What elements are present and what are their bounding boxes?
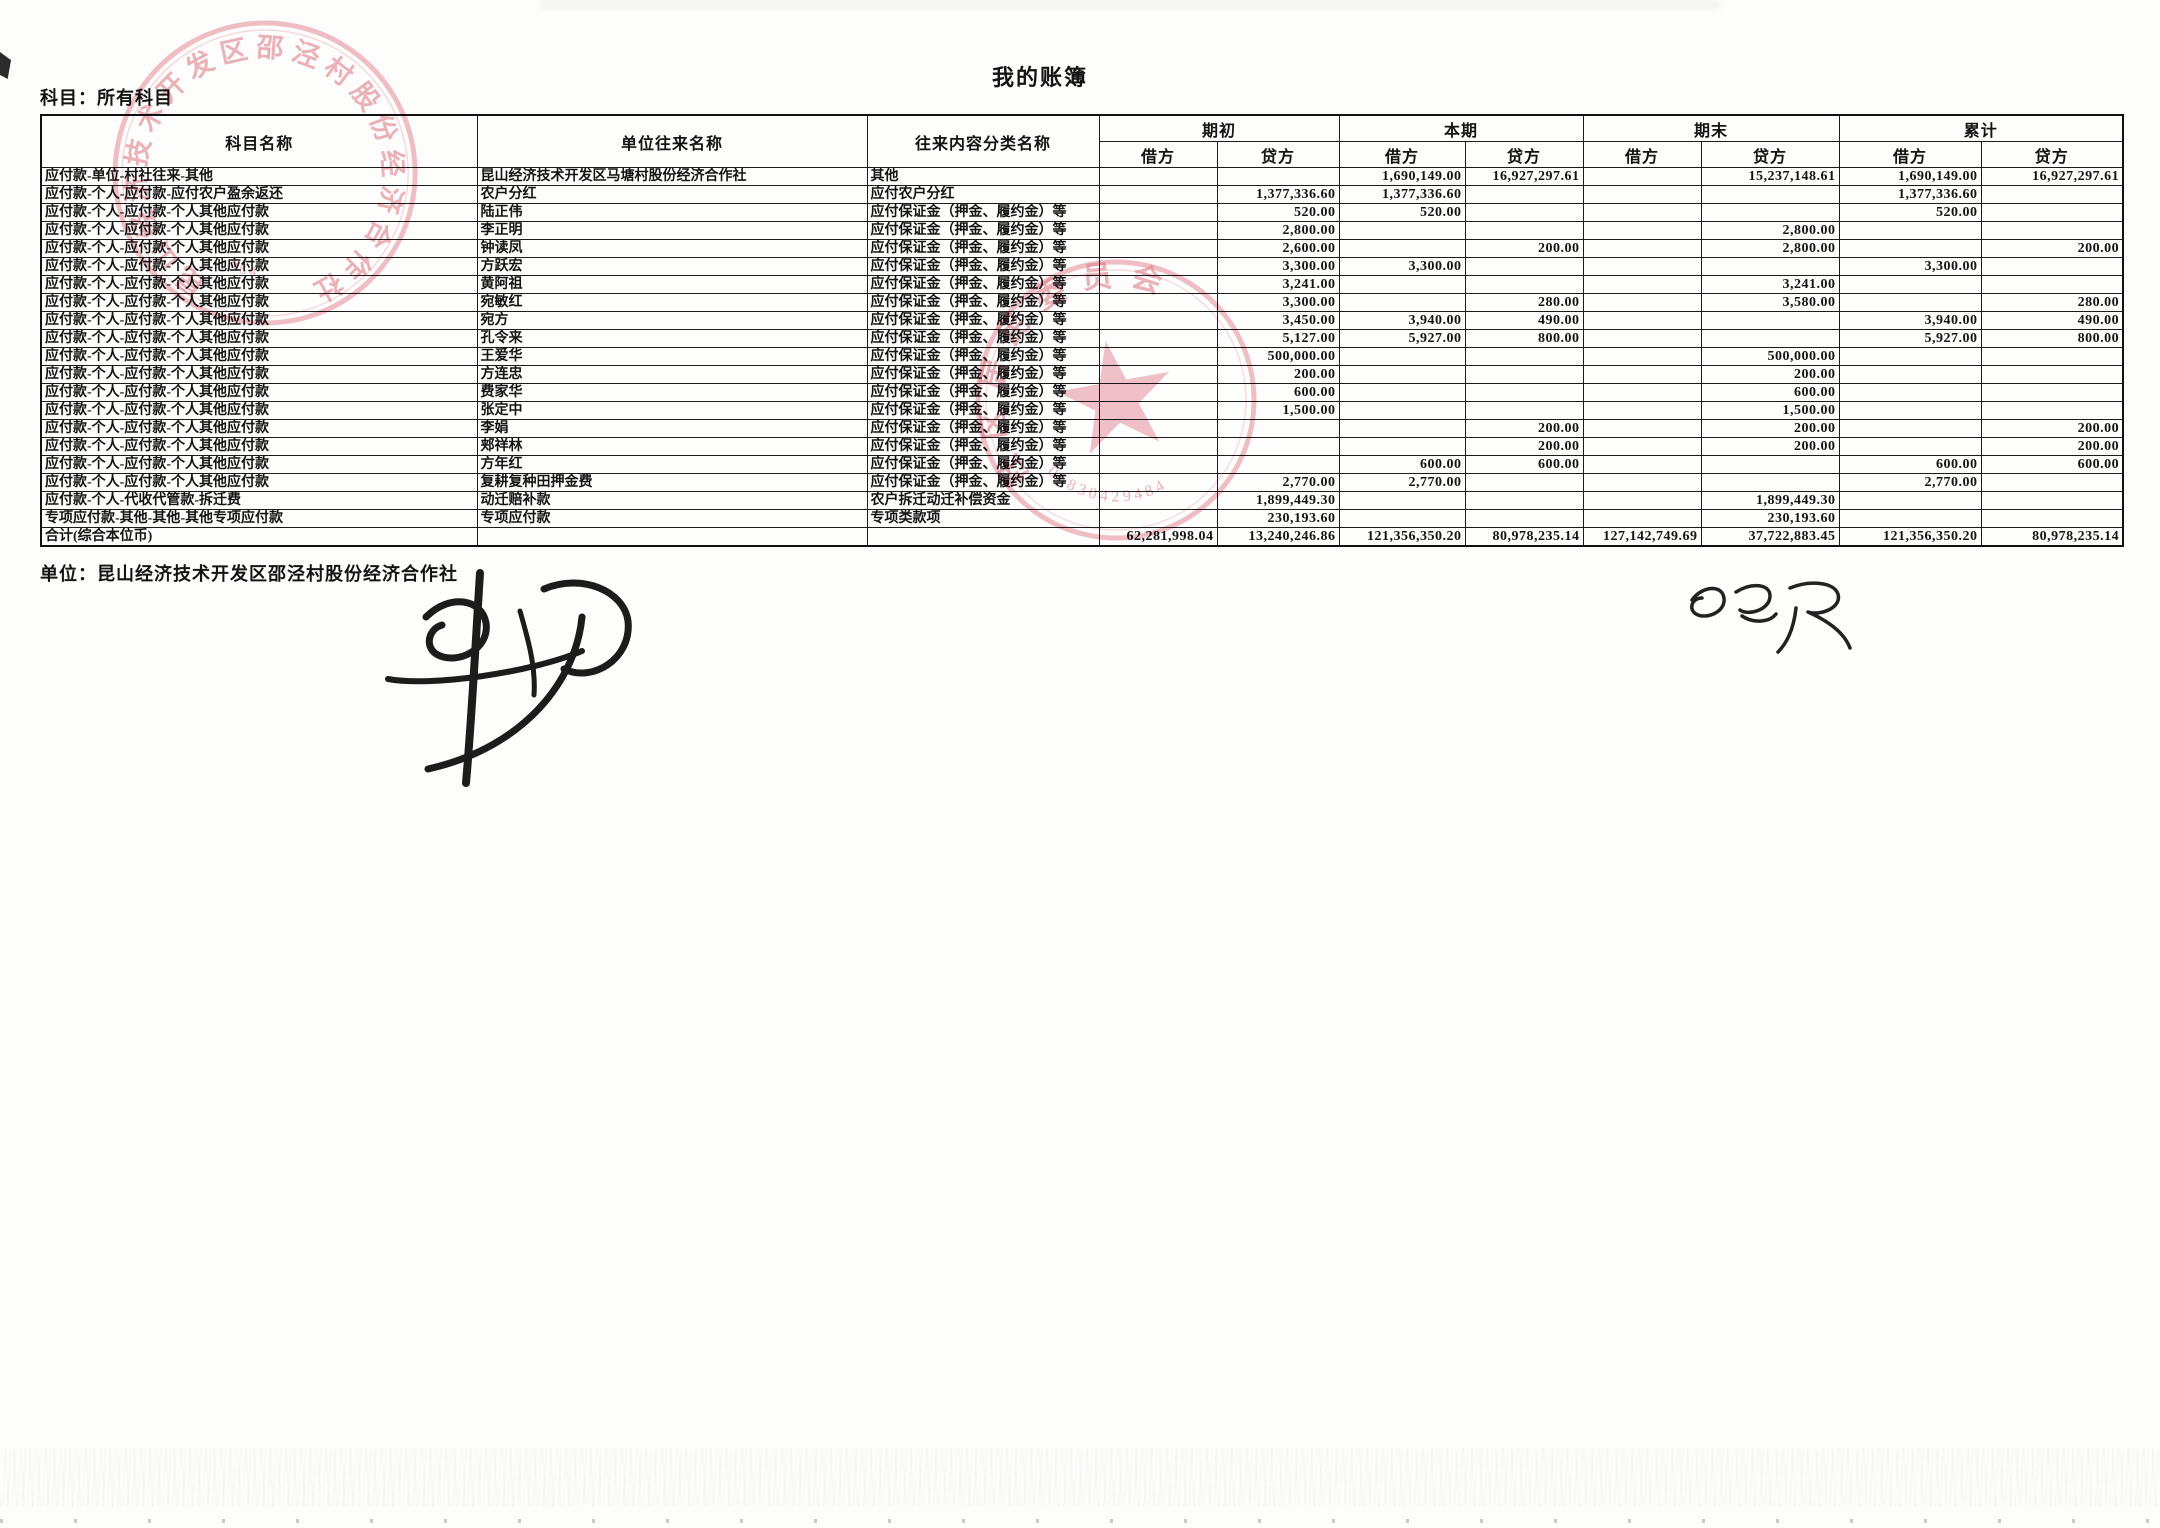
amount-cell: 600.00 [1981,456,2123,474]
text-cell: 应付保证金（押金、履约金）等 [867,438,1099,456]
amount-cell [1339,348,1465,366]
text-cell: 方跃宏 [477,258,867,276]
table-row: 应付款-个人-应付款-个人其他应付款李正明应付保证金（押金、履约金）等2,800… [41,222,2123,240]
amount-cell: 5,927.00 [1839,330,1981,348]
handwritten-signature-left [330,555,670,795]
text-cell [477,528,867,547]
header-credit: 贷方 [1981,142,2123,168]
amount-cell: 200.00 [1217,366,1339,384]
text-cell: 应付保证金（押金、履约金）等 [867,474,1099,492]
table-row: 应付款-个人-应付款-个人其他应付款王爱华应付保证金（押金、履约金）等500,0… [41,348,2123,366]
amount-cell: 200.00 [1981,240,2123,258]
table-row: 应付款-个人-应付款-个人其他应付款张定中应付保证金（押金、履约金）等1,500… [41,402,2123,420]
amount-cell [1701,312,1839,330]
amount-cell: 2,600.00 [1217,240,1339,258]
amount-cell [1339,240,1465,258]
text-cell: 应付款-个人-应付款-个人其他应付款 [41,330,477,348]
amount-cell [1099,276,1217,294]
amount-cell: 1,377,336.60 [1339,186,1465,204]
amount-cell: 200.00 [1981,420,2123,438]
amount-cell: 490.00 [1981,312,2123,330]
amount-cell: 500,000.00 [1701,348,1839,366]
text-cell: 应付保证金（押金、履约金）等 [867,348,1099,366]
amount-cell: 200.00 [1701,438,1839,456]
table-row: 专项应付款-其他-其他-其他专项应付款专项应付款专项类款项230,193.602… [41,510,2123,528]
amount-cell [1583,384,1701,402]
amount-cell: 3,940.00 [1339,312,1465,330]
amount-cell [1465,186,1583,204]
amount-cell: 2,770.00 [1339,474,1465,492]
text-cell: 应付款-个人-应付款-个人其他应付款 [41,438,477,456]
amount-cell [1465,384,1583,402]
text-cell [867,528,1099,547]
table-row: 应付款-个人-应付款-个人其他应付款方跃宏应付保证金（押金、履约金）等3,300… [41,258,2123,276]
amount-cell: 230,193.60 [1701,510,1839,528]
amount-cell [1339,366,1465,384]
text-cell: 合计(综合本位币) [41,528,477,547]
text-cell: 应付款-个人-应付款-个人其他应付款 [41,240,477,258]
amount-cell [1099,204,1217,222]
header-group-cumulative: 累计 [1839,115,2123,142]
ledger-table: 科目名称 单位往来名称 往来内容分类名称 期初 本期 期末 累计 借方 贷方 借… [40,114,2124,547]
text-cell: 方连忠 [477,366,867,384]
amount-cell [1701,204,1839,222]
amount-cell [1099,330,1217,348]
amount-cell [1099,240,1217,258]
text-cell: 应付款-个人-应付款-个人其他应付款 [41,258,477,276]
amount-cell [1465,402,1583,420]
amount-cell [1981,222,2123,240]
amount-cell [1839,420,1981,438]
amount-cell [1099,474,1217,492]
amount-cell: 200.00 [1465,420,1583,438]
amount-cell [1339,438,1465,456]
text-cell: 孔令来 [477,330,867,348]
header-debit: 借方 [1839,142,1981,168]
text-cell: 李正明 [477,222,867,240]
amount-cell [1583,186,1701,204]
amount-cell [1099,168,1217,186]
amount-cell [1099,312,1217,330]
amount-cell: 200.00 [1701,366,1839,384]
amount-cell [1583,420,1701,438]
amount-cell [1217,456,1339,474]
header-unit: 单位往来名称 [477,115,867,168]
text-cell: 宛敏红 [477,294,867,312]
text-cell: 李娟 [477,420,867,438]
table-row: 应付款-个人-应付款-个人其他应付款复耕复种田押金费应付保证金（押金、履约金）等… [41,474,2123,492]
text-cell: 方年红 [477,456,867,474]
table-row: 应付款-个人-应付款-个人其他应付款方连忠应付保证金（押金、履约金）等200.0… [41,366,2123,384]
text-cell: 应付款-个人-应付款-个人其他应付款 [41,456,477,474]
amount-cell [1217,438,1339,456]
amount-cell: 1,899,449.30 [1217,492,1339,510]
amount-cell: 800.00 [1465,330,1583,348]
amount-cell [1465,348,1583,366]
amount-cell: 520.00 [1839,204,1981,222]
amount-cell [1099,402,1217,420]
amount-cell [1099,222,1217,240]
amount-cell [1981,348,2123,366]
amount-cell: 3,300.00 [1839,258,1981,276]
amount-cell [1981,510,2123,528]
table-row: 应付款-个人-应付款-应付农户盈余返还农户分红应付农户分红1,377,336.6… [41,186,2123,204]
amount-cell [1839,348,1981,366]
amount-cell [1099,456,1217,474]
amount-cell: 490.00 [1465,312,1583,330]
text-cell: 应付保证金（押金、履约金）等 [867,384,1099,402]
amount-cell: 600.00 [1465,456,1583,474]
amount-cell [1839,492,1981,510]
amount-cell: 2,770.00 [1217,474,1339,492]
amount-cell: 200.00 [1465,240,1583,258]
text-cell: 郏祥林 [477,438,867,456]
table-row: 应付款-个人-应付款-个人其他应付款孔令来应付保证金（押金、履约金）等5,127… [41,330,2123,348]
header-credit: 贷方 [1701,142,1839,168]
amount-cell [1583,348,1701,366]
text-cell: 应付保证金（押金、履约金）等 [867,294,1099,312]
header-debit: 借方 [1339,142,1465,168]
amount-cell: 3,300.00 [1217,258,1339,276]
total-row: 合计(综合本位币)62,281,998.0413,240,246.86121,3… [41,528,2123,547]
amount-cell: 3,940.00 [1839,312,1981,330]
amount-cell [1217,168,1339,186]
header-group-current: 本期 [1339,115,1583,142]
amount-cell: 2,770.00 [1839,474,1981,492]
text-cell: 应付款-个人-应付款-个人其他应付款 [41,312,477,330]
text-cell: 应付款-个人-应付款-个人其他应付款 [41,276,477,294]
header-credit: 贷方 [1465,142,1583,168]
amount-cell [1099,492,1217,510]
amount-cell: 2,800.00 [1217,222,1339,240]
amount-cell [1839,402,1981,420]
table-row: 应付款-个人-应付款-个人其他应付款宛敏红应付保证金（押金、履约金）等3,300… [41,294,2123,312]
amount-cell: 121,356,350.20 [1339,528,1465,547]
text-cell: 其他 [867,168,1099,186]
text-cell: 应付款-单位-村社往来-其他 [41,168,477,186]
amount-cell [1583,438,1701,456]
table-header: 科目名称 单位往来名称 往来内容分类名称 期初 本期 期末 累计 借方 贷方 借… [41,115,2123,168]
amount-cell [1339,294,1465,312]
amount-cell [1839,366,1981,384]
header-credit: 贷方 [1217,142,1339,168]
amount-cell [1465,492,1583,510]
text-cell: 应付款-个人-应付款-个人其他应付款 [41,204,477,222]
table-row: 应付款-单位-村社往来-其他昆山经济技术开发区马塘村股份经济合作社其他1,690… [41,168,2123,186]
amount-cell: 520.00 [1217,204,1339,222]
amount-cell: 200.00 [1701,420,1839,438]
table-row: 应付款-个人-应付款-个人其他应付款黄阿祖应付保证金（押金、履约金）等3,241… [41,276,2123,294]
amount-cell [1583,402,1701,420]
scan-bottom-ticks [0,1519,2160,1523]
text-cell: 应付款-个人-应付款-个人其他应付款 [41,474,477,492]
text-cell: 应付款-个人-应付款-个人其他应付款 [41,222,477,240]
amount-cell [1099,384,1217,402]
amount-cell [1981,186,2123,204]
amount-cell: 1,500.00 [1701,402,1839,420]
handwritten-signature-right [1678,572,1868,667]
amount-cell [1701,456,1839,474]
text-cell: 应付保证金（押金、履约金）等 [867,258,1099,276]
text-cell: 应付保证金（押金、履约金）等 [867,240,1099,258]
amount-cell: 200.00 [1981,438,2123,456]
text-cell: 应付保证金（押金、履约金）等 [867,402,1099,420]
amount-cell [1583,240,1701,258]
amount-cell [1981,276,2123,294]
text-cell: 应付款-个人-应付款-个人其他应付款 [41,384,477,402]
amount-cell: 1,690,149.00 [1839,168,1981,186]
header-content: 往来内容分类名称 [867,115,1099,168]
amount-cell: 3,241.00 [1701,276,1839,294]
amount-cell [1583,222,1701,240]
text-cell: 昆山经济技术开发区马塘村股份经济合作社 [477,168,867,186]
scanned-ledger-page: 科目：所有科目 我的账簿 科目名称 单位往来名称 往来内容分类名称 期初 本期 … [0,0,2160,1528]
text-cell: 应付款-个人-应付款-应付农户盈余返还 [41,186,477,204]
amount-cell [1583,474,1701,492]
amount-cell [1583,276,1701,294]
text-cell: 应付农户分红 [867,186,1099,204]
amount-cell [1839,510,1981,528]
amount-cell: 1,377,336.60 [1217,186,1339,204]
table-row: 应付款-个人-应付款-个人其他应付款费家华应付保证金（押金、履约金）等600.0… [41,384,2123,402]
amount-cell [1339,222,1465,240]
amount-cell [1099,420,1217,438]
amount-cell: 16,927,297.61 [1465,168,1583,186]
table-row: 应付款-个人-应付款-个人其他应付款李娟应付保证金（押金、履约金）等200.00… [41,420,2123,438]
amount-cell [1099,294,1217,312]
amount-cell [1465,474,1583,492]
text-cell: 应付款-个人-应付款-个人其他应付款 [41,294,477,312]
amount-cell: 3,300.00 [1217,294,1339,312]
text-cell: 复耕复种田押金费 [477,474,867,492]
amount-cell: 600.00 [1217,384,1339,402]
amount-cell [1099,186,1217,204]
amount-cell: 600.00 [1839,456,1981,474]
amount-cell: 37,722,883.45 [1701,528,1839,547]
text-cell: 应付款-个人-应付款-个人其他应付款 [41,348,477,366]
text-cell: 应付保证金（押金、履约金）等 [867,222,1099,240]
text-cell: 应付保证金（押金、履约金）等 [867,456,1099,474]
amount-cell [1701,186,1839,204]
amount-cell: 200.00 [1465,438,1583,456]
amount-cell: 127,142,749.69 [1583,528,1701,547]
amount-cell: 1,377,336.60 [1839,186,1981,204]
amount-cell [1701,474,1839,492]
header-group-ending: 期末 [1583,115,1839,142]
amount-cell [1981,492,2123,510]
table-row: 应付款-个人-应付款-个人其他应付款陆正伟应付保证金（押金、履约金）等520.0… [41,204,2123,222]
text-cell: 应付保证金（押金、履约金）等 [867,330,1099,348]
amount-cell [1981,204,2123,222]
amount-cell: 3,241.00 [1217,276,1339,294]
amount-cell [1839,294,1981,312]
amount-cell [1583,456,1701,474]
amount-cell [1583,330,1701,348]
page-title: 我的账簿 [0,60,2080,92]
amount-cell [1465,258,1583,276]
amount-cell [1981,402,2123,420]
amount-cell [1339,420,1465,438]
amount-cell [1339,402,1465,420]
header-debit: 借方 [1099,142,1217,168]
amount-cell: 16,927,297.61 [1981,168,2123,186]
amount-cell: 3,450.00 [1217,312,1339,330]
scan-noise-band [0,1448,2160,1506]
amount-cell [1583,366,1701,384]
text-cell: 钟读凤 [477,240,867,258]
amount-cell: 80,978,235.14 [1981,528,2123,547]
text-cell: 应付款-个人-应付款-个人其他应付款 [41,366,477,384]
scan-smudge [540,0,1720,10]
amount-cell [1217,420,1339,438]
text-cell: 农户分红 [477,186,867,204]
amount-cell [1981,258,2123,276]
amount-cell [1839,384,1981,402]
text-cell: 王爱华 [477,348,867,366]
amount-cell [1465,366,1583,384]
amount-cell: 62,281,998.04 [1099,528,1217,547]
table-row: 应付款-个人-应付款-个人其他应付款钟读凤应付保证金（押金、履约金）等2,600… [41,240,2123,258]
text-cell: 应付保证金（押金、履约金）等 [867,366,1099,384]
amount-cell [1981,474,2123,492]
table-row: 应付款-个人-应付款-个人其他应付款方年红应付保证金（押金、履约金）等600.0… [41,456,2123,474]
amount-cell: 5,927.00 [1339,330,1465,348]
amount-cell [1099,366,1217,384]
amount-cell [1099,438,1217,456]
amount-cell [1465,510,1583,528]
table-row: 应付款-个人-代收代管款-拆迁费动迁赔补款农户拆迁动迁补偿资金1,899,449… [41,492,2123,510]
amount-cell [1701,330,1839,348]
text-cell: 农户拆迁动迁补偿资金 [867,492,1099,510]
amount-cell [1339,384,1465,402]
amount-cell [1583,168,1701,186]
amount-cell [1839,276,1981,294]
amount-cell [1339,492,1465,510]
amount-cell: 1,690,149.00 [1339,168,1465,186]
text-cell: 专项应付款-其他-其他-其他专项应付款 [41,510,477,528]
table-row: 应付款-个人-应付款-个人其他应付款郏祥林应付保证金（押金、履约金）等200.0… [41,438,2123,456]
amount-cell: 121,356,350.20 [1839,528,1981,547]
amount-cell [1583,510,1701,528]
table-row: 应付款-个人-应付款-个人其他应付款宛方应付保证金（押金、履约金）等3,450.… [41,312,2123,330]
amount-cell: 13,240,246.86 [1217,528,1339,547]
text-cell: 应付保证金（押金、履约金）等 [867,276,1099,294]
amount-cell: 3,580.00 [1701,294,1839,312]
amount-cell [1583,294,1701,312]
ledger-table-body: 应付款-单位-村社往来-其他昆山经济技术开发区马塘村股份经济合作社其他1,690… [41,168,2123,547]
amount-cell [1583,492,1701,510]
amount-cell [1839,240,1981,258]
header-group-initial: 期初 [1099,115,1339,142]
amount-cell [1099,510,1217,528]
amount-cell [1981,366,2123,384]
amount-cell [1099,348,1217,366]
text-cell: 张定中 [477,402,867,420]
amount-cell [1465,222,1583,240]
amount-cell: 80,978,235.14 [1465,528,1583,547]
amount-cell [1465,276,1583,294]
header-subject: 科目名称 [41,115,477,168]
amount-cell: 1,500.00 [1217,402,1339,420]
text-cell: 宛方 [477,312,867,330]
amount-cell: 800.00 [1981,330,2123,348]
amount-cell: 1,899,449.30 [1701,492,1839,510]
amount-cell [1839,438,1981,456]
amount-cell: 5,127.00 [1217,330,1339,348]
amount-cell: 3,300.00 [1339,258,1465,276]
amount-cell [1583,204,1701,222]
amount-cell: 600.00 [1701,384,1839,402]
text-cell: 应付款-个人-应付款-个人其他应付款 [41,402,477,420]
text-cell: 动迁赔补款 [477,492,867,510]
text-cell: 费家华 [477,384,867,402]
amount-cell [1339,510,1465,528]
text-cell: 专项应付款 [477,510,867,528]
text-cell: 应付保证金（押金、履约金）等 [867,204,1099,222]
text-cell: 应付保证金（押金、履约金）等 [867,312,1099,330]
text-cell: 应付款-个人-代收代管款-拆迁费 [41,492,477,510]
amount-cell: 600.00 [1339,456,1465,474]
text-cell: 应付保证金（押金、履约金）等 [867,420,1099,438]
amount-cell: 230,193.60 [1217,510,1339,528]
amount-cell [1099,258,1217,276]
amount-cell: 520.00 [1339,204,1465,222]
amount-cell [1583,312,1701,330]
amount-cell: 280.00 [1465,294,1583,312]
amount-cell [1583,258,1701,276]
amount-cell [1701,258,1839,276]
amount-cell: 15,237,148.61 [1701,168,1839,186]
amount-cell [1839,222,1981,240]
amount-cell [1981,384,2123,402]
amount-cell [1465,204,1583,222]
text-cell: 黄阿祖 [477,276,867,294]
text-cell: 陆正伟 [477,204,867,222]
amount-cell: 2,800.00 [1701,222,1839,240]
header-debit: 借方 [1583,142,1701,168]
amount-cell [1339,276,1465,294]
text-cell: 专项类款项 [867,510,1099,528]
footer-unit-label: 单位：昆山经济技术开发区邵泾村股份经济合作社 [40,560,458,586]
text-cell: 应付款-个人-应付款-个人其他应付款 [41,420,477,438]
amount-cell: 500,000.00 [1217,348,1339,366]
amount-cell: 2,800.00 [1701,240,1839,258]
amount-cell: 280.00 [1981,294,2123,312]
